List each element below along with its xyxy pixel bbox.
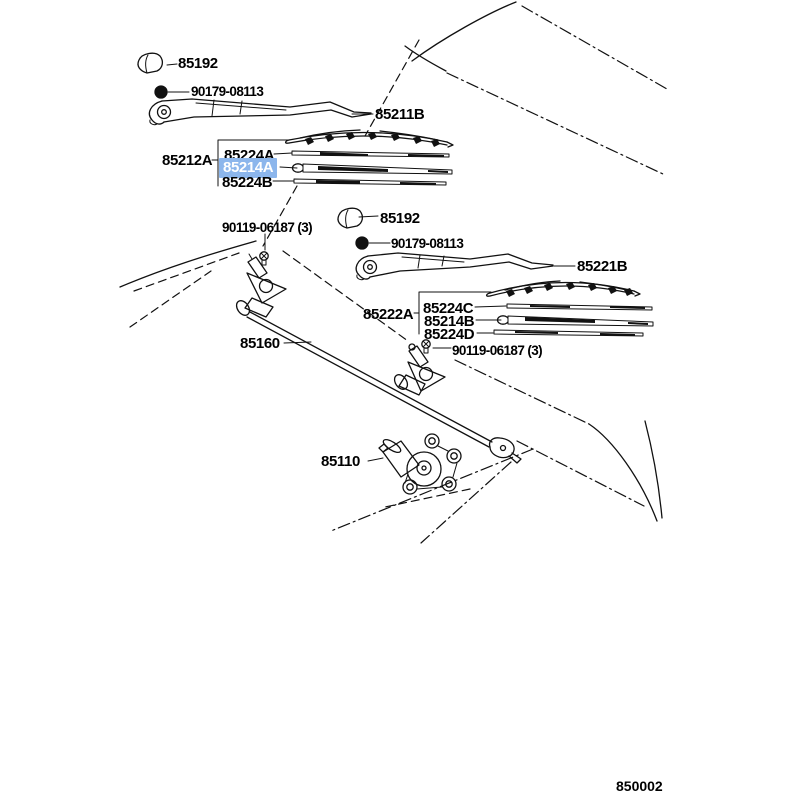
parts-diagram: 85192 90179-08113 85211B 85212A 85224A 8… — [0, 0, 800, 800]
wiper-pivot-left — [234, 254, 286, 318]
part-label-85192-rear[interactable]: 85192 — [380, 210, 420, 227]
blade-rubber-set-front — [292, 151, 452, 185]
part-label-85160[interactable]: 85160 — [240, 335, 280, 352]
part-label-85222a[interactable]: 85222A — [363, 306, 413, 323]
part-label-85224d[interactable]: 85224D — [424, 326, 474, 343]
wiper-blade-front — [286, 130, 453, 147]
part-label-90119-06187-left[interactable]: 90119-06187 (3) — [222, 220, 312, 236]
blade-rubber-set-rear — [494, 304, 653, 336]
part-label-85221b[interactable]: 85221B — [577, 258, 627, 275]
part-label-85192-front[interactable]: 85192 — [178, 55, 218, 72]
part-label-85224b[interactable]: 85224B — [222, 174, 272, 191]
wiper-blade-rear — [487, 281, 640, 297]
part-label-90179-08113-rear[interactable]: 90179-08113 — [391, 236, 463, 252]
pivot-bolt-front-icon — [260, 252, 268, 265]
arm-nut-front-icon — [155, 86, 167, 98]
part-label-85212a[interactable]: 85212A — [162, 152, 212, 169]
part-label-85110[interactable]: 85110 — [321, 453, 360, 470]
pivot-cap-rear-icon — [338, 208, 362, 228]
arm-nut-rear-icon — [356, 237, 368, 249]
wiper-pivot-right — [392, 344, 445, 395]
figure-number: 850002 — [616, 778, 663, 794]
part-label-90119-06187-right[interactable]: 90119-06187 (3) — [452, 343, 542, 359]
part-label-85211b[interactable]: 85211B — [375, 106, 424, 123]
part-label-90179-08113-front[interactable]: 90179-08113 — [191, 84, 263, 100]
pivot-cap-front-icon — [138, 53, 162, 73]
wiper-arm-rear — [356, 253, 553, 280]
wiper-arm-front — [149, 99, 371, 125]
wiper-motor — [379, 434, 461, 494]
leader-lines — [167, 64, 575, 461]
